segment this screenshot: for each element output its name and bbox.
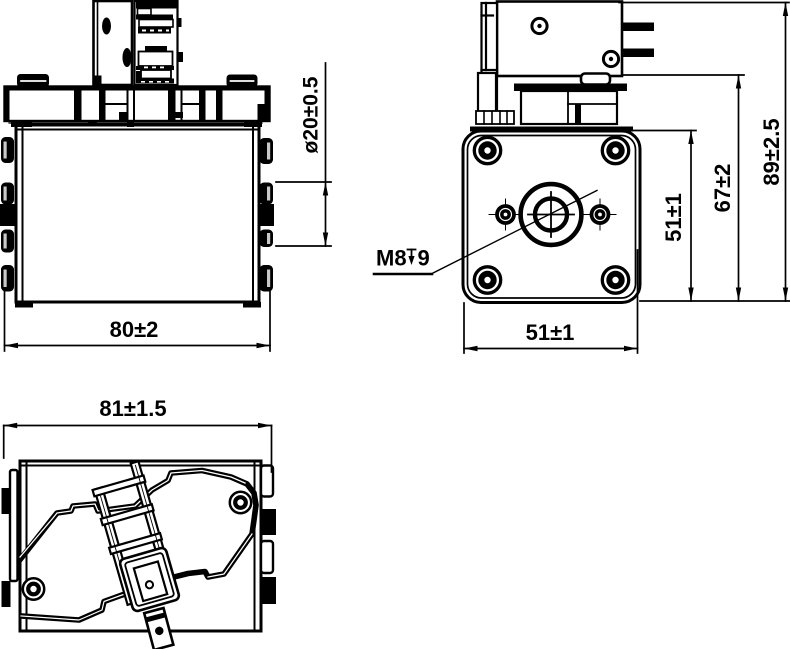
svg-text:89±2.5: 89±2.5 bbox=[759, 118, 784, 185]
svg-text:51±1: 51±1 bbox=[526, 320, 575, 345]
svg-text:81±1.5: 81±1.5 bbox=[99, 396, 166, 421]
svg-text:80±2: 80±2 bbox=[110, 317, 159, 342]
svg-text:M8: M8 bbox=[376, 246, 407, 271]
svg-text:51±1: 51±1 bbox=[661, 193, 686, 242]
svg-text:9: 9 bbox=[418, 246, 430, 271]
svg-text:ø20±0.5: ø20±0.5 bbox=[300, 76, 323, 153]
svg-text:67±2: 67±2 bbox=[710, 164, 735, 213]
